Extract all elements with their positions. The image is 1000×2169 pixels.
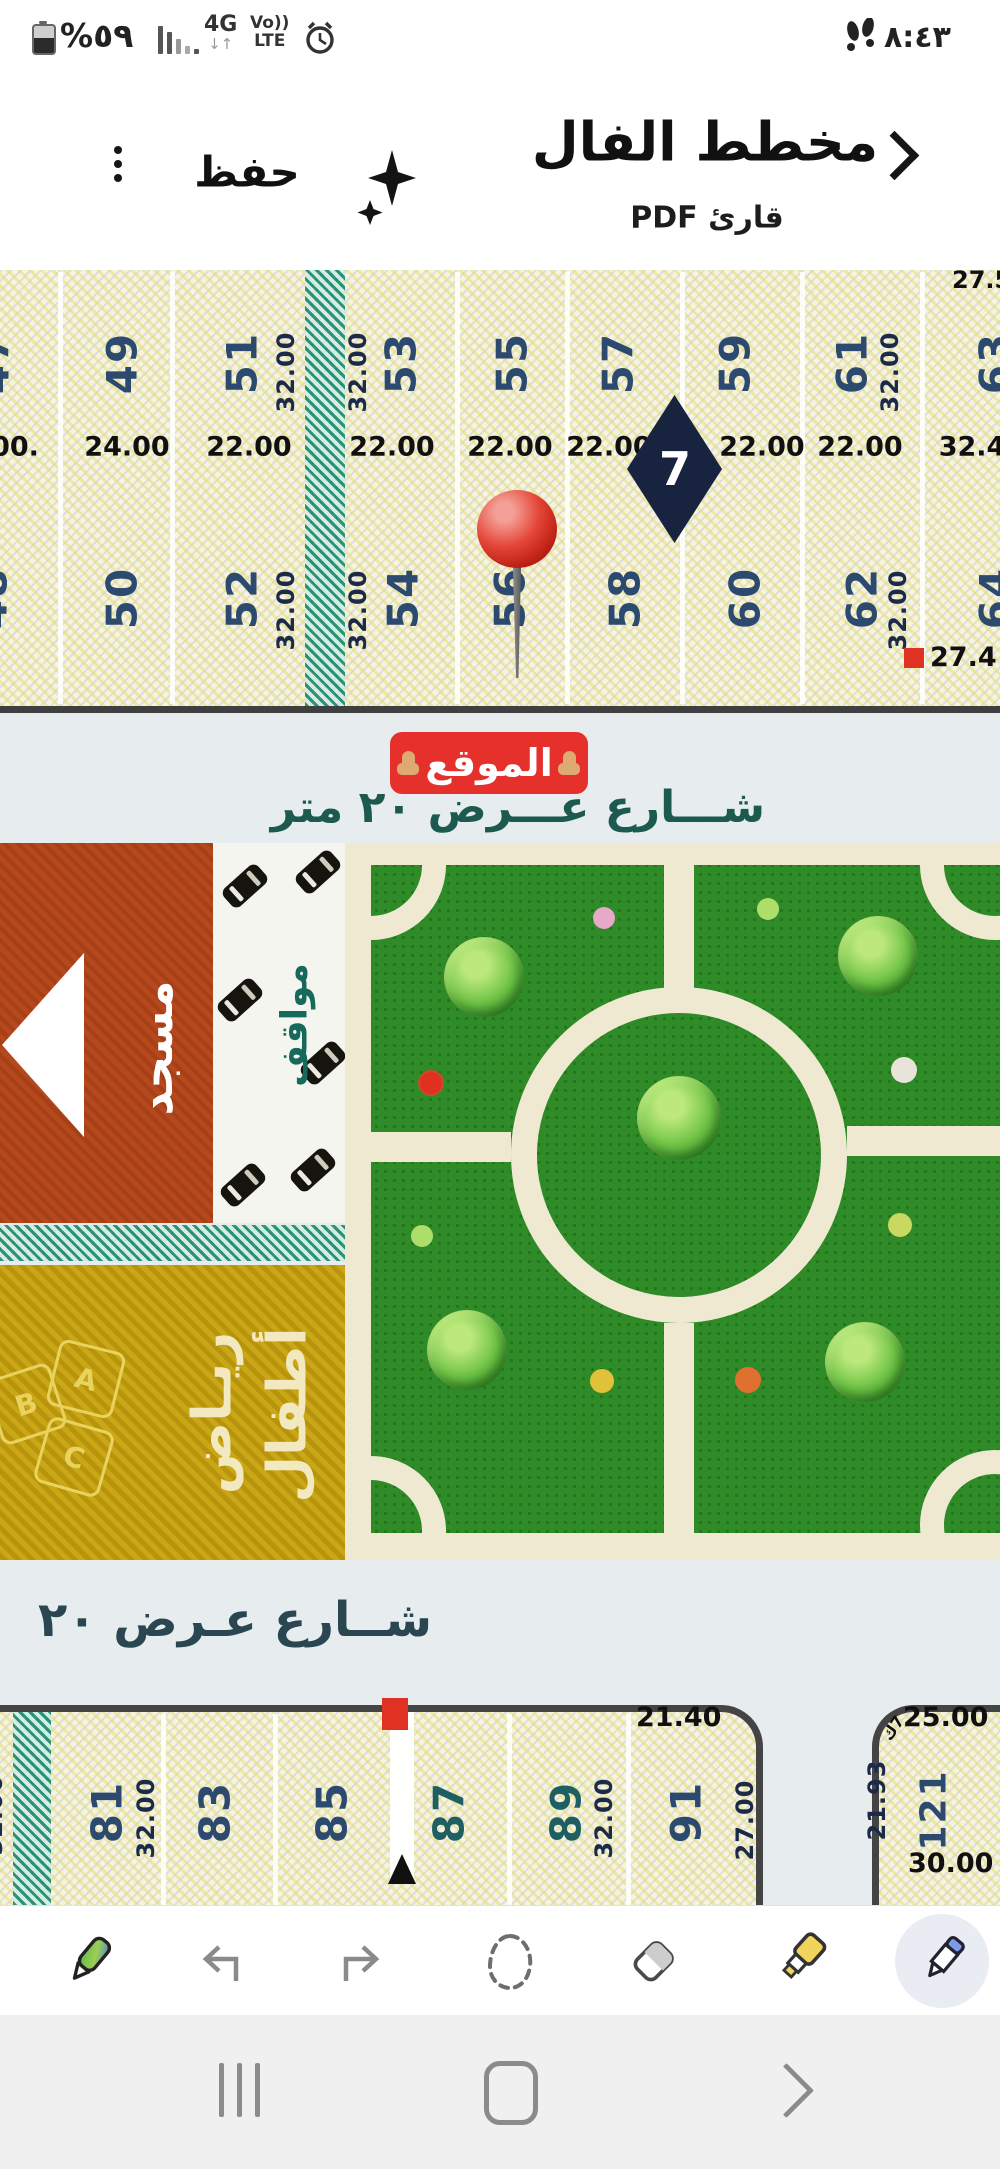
plot-dim: 32.00 [344, 332, 372, 413]
plot-number: 52 [218, 567, 267, 629]
flower-icon [593, 907, 615, 929]
plot-dim: 32.00 [876, 332, 904, 413]
width-dim: 22.00 [817, 432, 902, 463]
save-button[interactable]: حفظ [194, 148, 299, 197]
tree-icon [444, 937, 524, 1017]
plot-number: 85 [308, 1781, 357, 1843]
width-dim: 22.00 [719, 432, 804, 463]
toy-block-letter: B [11, 1385, 41, 1423]
corner-arc-path [345, 1456, 446, 1560]
flower-icon [757, 898, 779, 920]
pdf-canvas[interactable]: 47 49 51 32.00 32.00 53 55 57 59 61 32.0… [0, 270, 1000, 1905]
walkway-strip-mid [0, 1225, 345, 1261]
highlighter-icon [766, 1926, 832, 1996]
eraser-button[interactable] [622, 1930, 684, 1994]
diamond-label: 7 [659, 442, 691, 496]
mosque-block: مسجد [0, 843, 213, 1223]
chevron-right-icon [759, 2063, 814, 2118]
undo-icon [192, 1933, 252, 1991]
flower-icon [590, 1369, 614, 1393]
plot-number: 49 [98, 332, 147, 394]
battery-percent: %٥٩ [60, 16, 133, 55]
battery-icon [32, 24, 56, 55]
sparkle-icon [356, 148, 422, 226]
mihrab-arrow-icon [2, 953, 84, 1137]
car-icon [288, 1146, 338, 1195]
pin-needle [511, 560, 523, 678]
lasso-select-button[interactable] [478, 1928, 542, 1996]
toy-block-letter: C [60, 1438, 89, 1475]
plot-number: 83 [191, 1781, 240, 1843]
android-nav-bar [0, 2015, 1000, 2169]
assist-button[interactable] [352, 148, 422, 228]
divider-red-square [382, 1698, 408, 1730]
walkway-strip-top [305, 270, 345, 706]
plot-dim: 32.00 [0, 1775, 8, 1856]
plot-dim: 32.00 [132, 1778, 160, 1859]
plot-number: 57 [594, 332, 643, 394]
plot-dim: 32.00 [272, 570, 300, 651]
footprints-icon [843, 18, 877, 58]
flower-icon [891, 1057, 917, 1083]
plot-number: 61 [828, 332, 877, 394]
car-icon [220, 862, 270, 911]
home-button[interactable] [478, 2061, 538, 2121]
more-menu-button[interactable] [96, 138, 140, 208]
network-type: 4G ↓↑ [204, 14, 237, 52]
park-path [847, 1126, 1000, 1156]
kindergarten-label-word2: أطفال [256, 1327, 319, 1502]
plot-number: 62 [838, 567, 887, 629]
corner-arc-path [920, 1450, 1000, 1560]
redo-button[interactable] [330, 1933, 390, 1991]
location-badge: الموقع [390, 732, 588, 794]
tree-icon [427, 1310, 507, 1390]
color-pen-icon [57, 1931, 119, 1993]
park-block [345, 843, 1000, 1560]
plot-number: 59 [711, 332, 760, 394]
plot-number: 60 [721, 567, 770, 629]
flower-icon [735, 1367, 761, 1393]
plot-number: 55 [488, 332, 537, 394]
corner-arc-path [345, 843, 446, 940]
plot-number: 81 [83, 1781, 132, 1843]
park-path [664, 865, 694, 989]
volte-line1: Vo)) [250, 14, 289, 32]
alarm-clock-icon [302, 18, 338, 58]
plot-number: 58 [601, 567, 650, 629]
plot-dim: 21.93 [863, 1760, 891, 1841]
status-bar: %٥٩ 4G ↓↑ Vo)) LTE ٨:٤٣ [0, 0, 1000, 80]
car-icon [293, 848, 343, 897]
phone-screen: %٥٩ 4G ↓↑ Vo)) LTE ٨:٤٣ [0, 0, 1000, 2169]
plot-dim: 32.00 [344, 570, 372, 651]
tree-icon [825, 1322, 905, 1402]
plot-number: 50 [98, 567, 147, 629]
plot-dim: 32.00 [590, 1778, 618, 1859]
lasso-select-icon [478, 1928, 542, 1996]
plot-number: 54 [379, 567, 428, 629]
corner-red-square [904, 648, 924, 668]
highlighter-button[interactable] [766, 1926, 832, 1996]
network-arrows: ↓↑ [204, 36, 237, 52]
kindergarten-block: A B C أطفال ريـاض [0, 1265, 345, 1573]
plot-number: 63 [971, 332, 1000, 394]
plot-number: 64 [971, 567, 1000, 629]
volte-indicator: Vo)) LTE [250, 14, 289, 50]
edge-dim: 27.4 [930, 642, 997, 673]
corner-arc-path [920, 843, 1000, 940]
flower-icon [888, 1213, 912, 1237]
recents-icon [200, 2063, 260, 2117]
location-badge-label: الموقع [425, 744, 552, 782]
status-time: ٨:٤٣ [884, 20, 951, 55]
map-pin [475, 490, 559, 680]
car-icon [218, 1161, 268, 1210]
active-pen-icon [914, 1933, 970, 1989]
flower-icon [411, 1225, 433, 1247]
flower-icon [418, 1070, 444, 1096]
block-boundary-line [0, 706, 1000, 713]
walkway-strip-bottom [13, 1712, 51, 1905]
annotation-toolbar [0, 1905, 1000, 2016]
plot-number: 91 [662, 1781, 711, 1843]
width-dim: .00 [0, 432, 39, 463]
plot-dim: 27.00 [731, 1780, 759, 1861]
width-dim: 22.00 [467, 432, 552, 463]
plot-number: 87 [425, 1781, 474, 1843]
pointing-finger-icon [563, 751, 576, 775]
home-icon [484, 2061, 538, 2125]
street-label-bottom: شــارع عـرض ٢٠ [25, 1592, 445, 1648]
network-4g-label: 4G [204, 14, 237, 36]
kebab-menu-icon [114, 146, 122, 154]
park-path [664, 1323, 694, 1533]
mosque-label: مسجد [129, 980, 183, 1115]
plot-number: 48 [0, 567, 17, 629]
pointing-finger-icon [402, 751, 415, 775]
park-path [371, 1132, 511, 1162]
plot-dim: 32.00 [272, 332, 300, 413]
plot-number: 89 [542, 1781, 591, 1843]
signal-bars-icon [158, 22, 202, 54]
tree-icon [838, 916, 918, 996]
park-path [345, 843, 371, 1560]
width-dim: 25.00 [903, 1702, 988, 1733]
plot-number: 53 [377, 332, 426, 394]
page-subtitle: قارئ PDF [630, 201, 784, 236]
app-header: مخطط الفال قارئ PDF حفظ [0, 80, 1000, 270]
divider-black-triangle [388, 1854, 416, 1884]
toy-block-letter: A [72, 1360, 101, 1397]
edge-dim: 27.5 [952, 270, 1000, 294]
color-pen-tool-button[interactable] [57, 1931, 119, 1993]
redo-icon [330, 1933, 390, 1991]
undo-button[interactable] [192, 1933, 252, 1991]
parking-label: مواقف [275, 963, 316, 1087]
tree-icon [637, 1076, 721, 1160]
active-pen-tool-button[interactable] [895, 1914, 989, 2008]
width-dim: 30.00 [908, 1848, 993, 1879]
volte-line2: LTE [250, 32, 289, 50]
parking-strip: مواقف [213, 843, 345, 1223]
recents-button[interactable] [200, 2063, 260, 2123]
page-title: مخطط الفال [532, 111, 878, 174]
plot-dim: 32.00 [884, 570, 912, 651]
car-icon [215, 976, 265, 1025]
width-dim: 22.00 [206, 432, 291, 463]
plot-number: 121 [914, 1769, 955, 1850]
width-dim: 22.00 [349, 432, 434, 463]
plot-number: 47 [0, 332, 19, 394]
plot-number: 51 [218, 332, 267, 394]
eraser-icon [622, 1930, 684, 1994]
width-dim: 21.40 [636, 1702, 721, 1733]
pin-head [477, 490, 557, 568]
width-dim: 32.4 [939, 432, 1000, 463]
nav-back-button[interactable] [752, 2065, 812, 2125]
kindergarten-label-word1: ريـاض [181, 1332, 244, 1495]
width-dim: 24.00 [84, 432, 169, 463]
